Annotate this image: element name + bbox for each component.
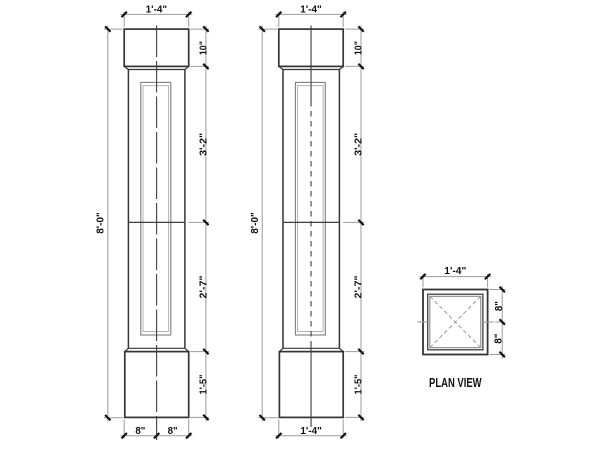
svg-text:1'-4": 1'-4"	[146, 4, 168, 15]
svg-text:2'-7": 2'-7"	[353, 275, 364, 298]
svg-text:8'-0": 8'-0"	[250, 212, 261, 234]
svg-text:1'-4": 1'-4"	[300, 4, 322, 15]
svg-text:2'-7": 2'-7"	[198, 275, 209, 298]
svg-text:1'-4": 1'-4"	[444, 266, 466, 277]
svg-text:3'-2": 3'-2"	[353, 133, 364, 156]
svg-text:3'-2": 3'-2"	[198, 133, 209, 156]
svg-text:1'-5": 1'-5"	[353, 374, 364, 394]
svg-text:8": 8"	[135, 426, 145, 437]
svg-text:8'-0": 8'-0"	[96, 212, 107, 234]
svg-text:PLAN VIEW: PLAN VIEW	[429, 375, 482, 390]
svg-text:1'-5": 1'-5"	[198, 374, 209, 394]
svg-text:8": 8"	[168, 426, 178, 437]
svg-text:1'-4": 1'-4"	[300, 426, 322, 437]
svg-text:8": 8"	[494, 301, 505, 311]
svg-text:10": 10"	[354, 41, 365, 55]
svg-text:10": 10"	[198, 41, 209, 55]
svg-text:8": 8"	[494, 333, 505, 343]
